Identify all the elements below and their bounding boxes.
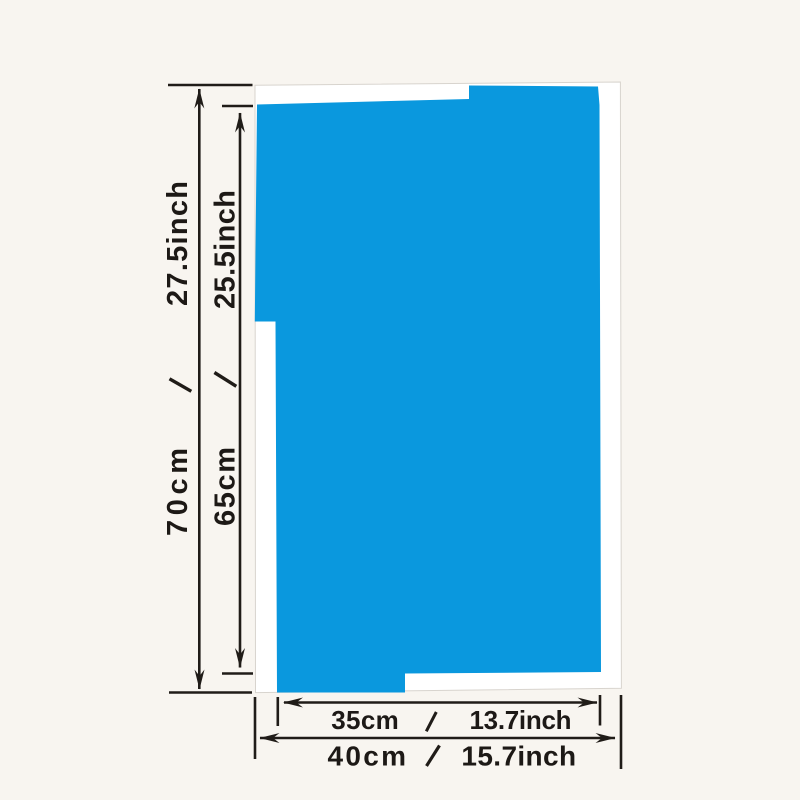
- svg-text:35cm: 35cm: [331, 705, 399, 735]
- svg-text:65cm: 65cm: [210, 447, 242, 526]
- svg-text:70cm: 70cm: [162, 448, 194, 536]
- svg-text:13.7inch: 13.7inch: [470, 705, 572, 735]
- svg-text:40cm: 40cm: [328, 740, 407, 771]
- svg-text:25.5inch: 25.5inch: [210, 190, 242, 309]
- svg-text:15.7inch: 15.7inch: [461, 740, 576, 771]
